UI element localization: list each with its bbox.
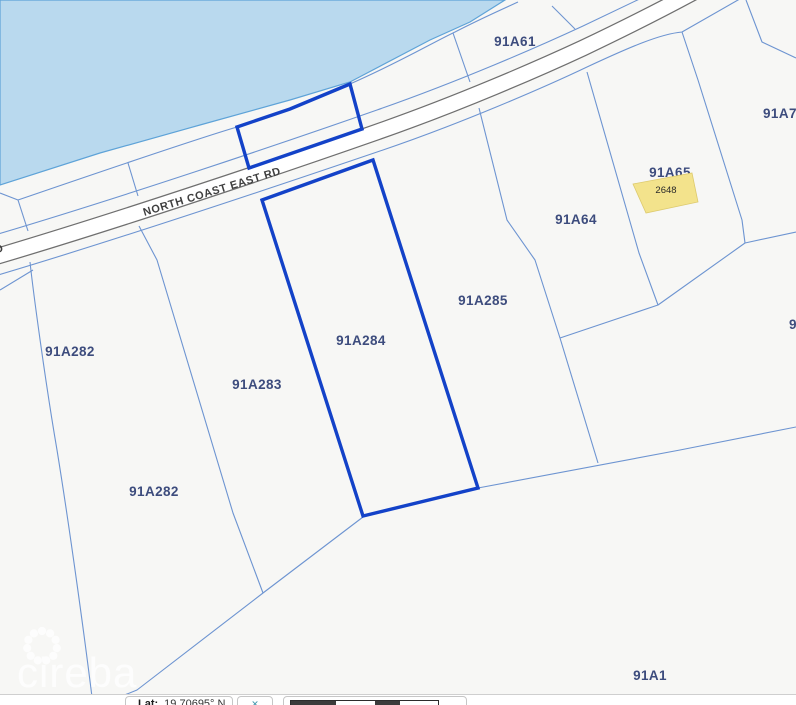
map-label-2648: 2648 [655,185,676,196]
latitude-value: 19.70695° N [164,698,225,705]
map-label-91a64: 91A64 [555,212,597,227]
map-label-91a283: 91A283 [232,377,282,392]
watermark-text: cireba [17,649,137,696]
scalebar-container [283,696,467,705]
cireba-dot [52,636,60,644]
map-label-91a1: 91A1 [633,668,667,683]
coordinate-close-button[interactable]: ✕ [237,696,273,705]
cireba-dot [46,629,54,637]
cireba-dot [24,636,32,644]
bottom-bar: Lat: 19.70695° N ✕ [0,694,796,705]
scalebar-segment [291,701,336,705]
map-label-91a284: 91A284 [336,333,386,348]
map-label-9: 9 [789,317,796,332]
map-label-91a282: 91A282 [129,484,179,499]
cireba-dot [30,629,38,637]
map-label-91a282: 91A282 [45,344,95,359]
map-label-91a61: 91A61 [494,34,536,49]
scalebar [290,700,439,705]
scalebar-segment [336,701,375,705]
latitude-readout: Lat: 19.70695° N [125,696,233,705]
map-label-91a285: 91A285 [458,293,508,308]
scalebar-segment [400,701,438,705]
map-viewer: 91A65 91A6191A7791A6491A28591A28491A2839… [0,0,796,705]
cadastral-map[interactable]: 91A65 91A6191A7791A6491A28591A28491A2839… [0,0,796,705]
cireba-dot [38,627,46,635]
latitude-label: Lat: [138,698,158,705]
scalebar-segment [375,701,400,705]
map-label-91a77: 91A77 [763,106,796,121]
